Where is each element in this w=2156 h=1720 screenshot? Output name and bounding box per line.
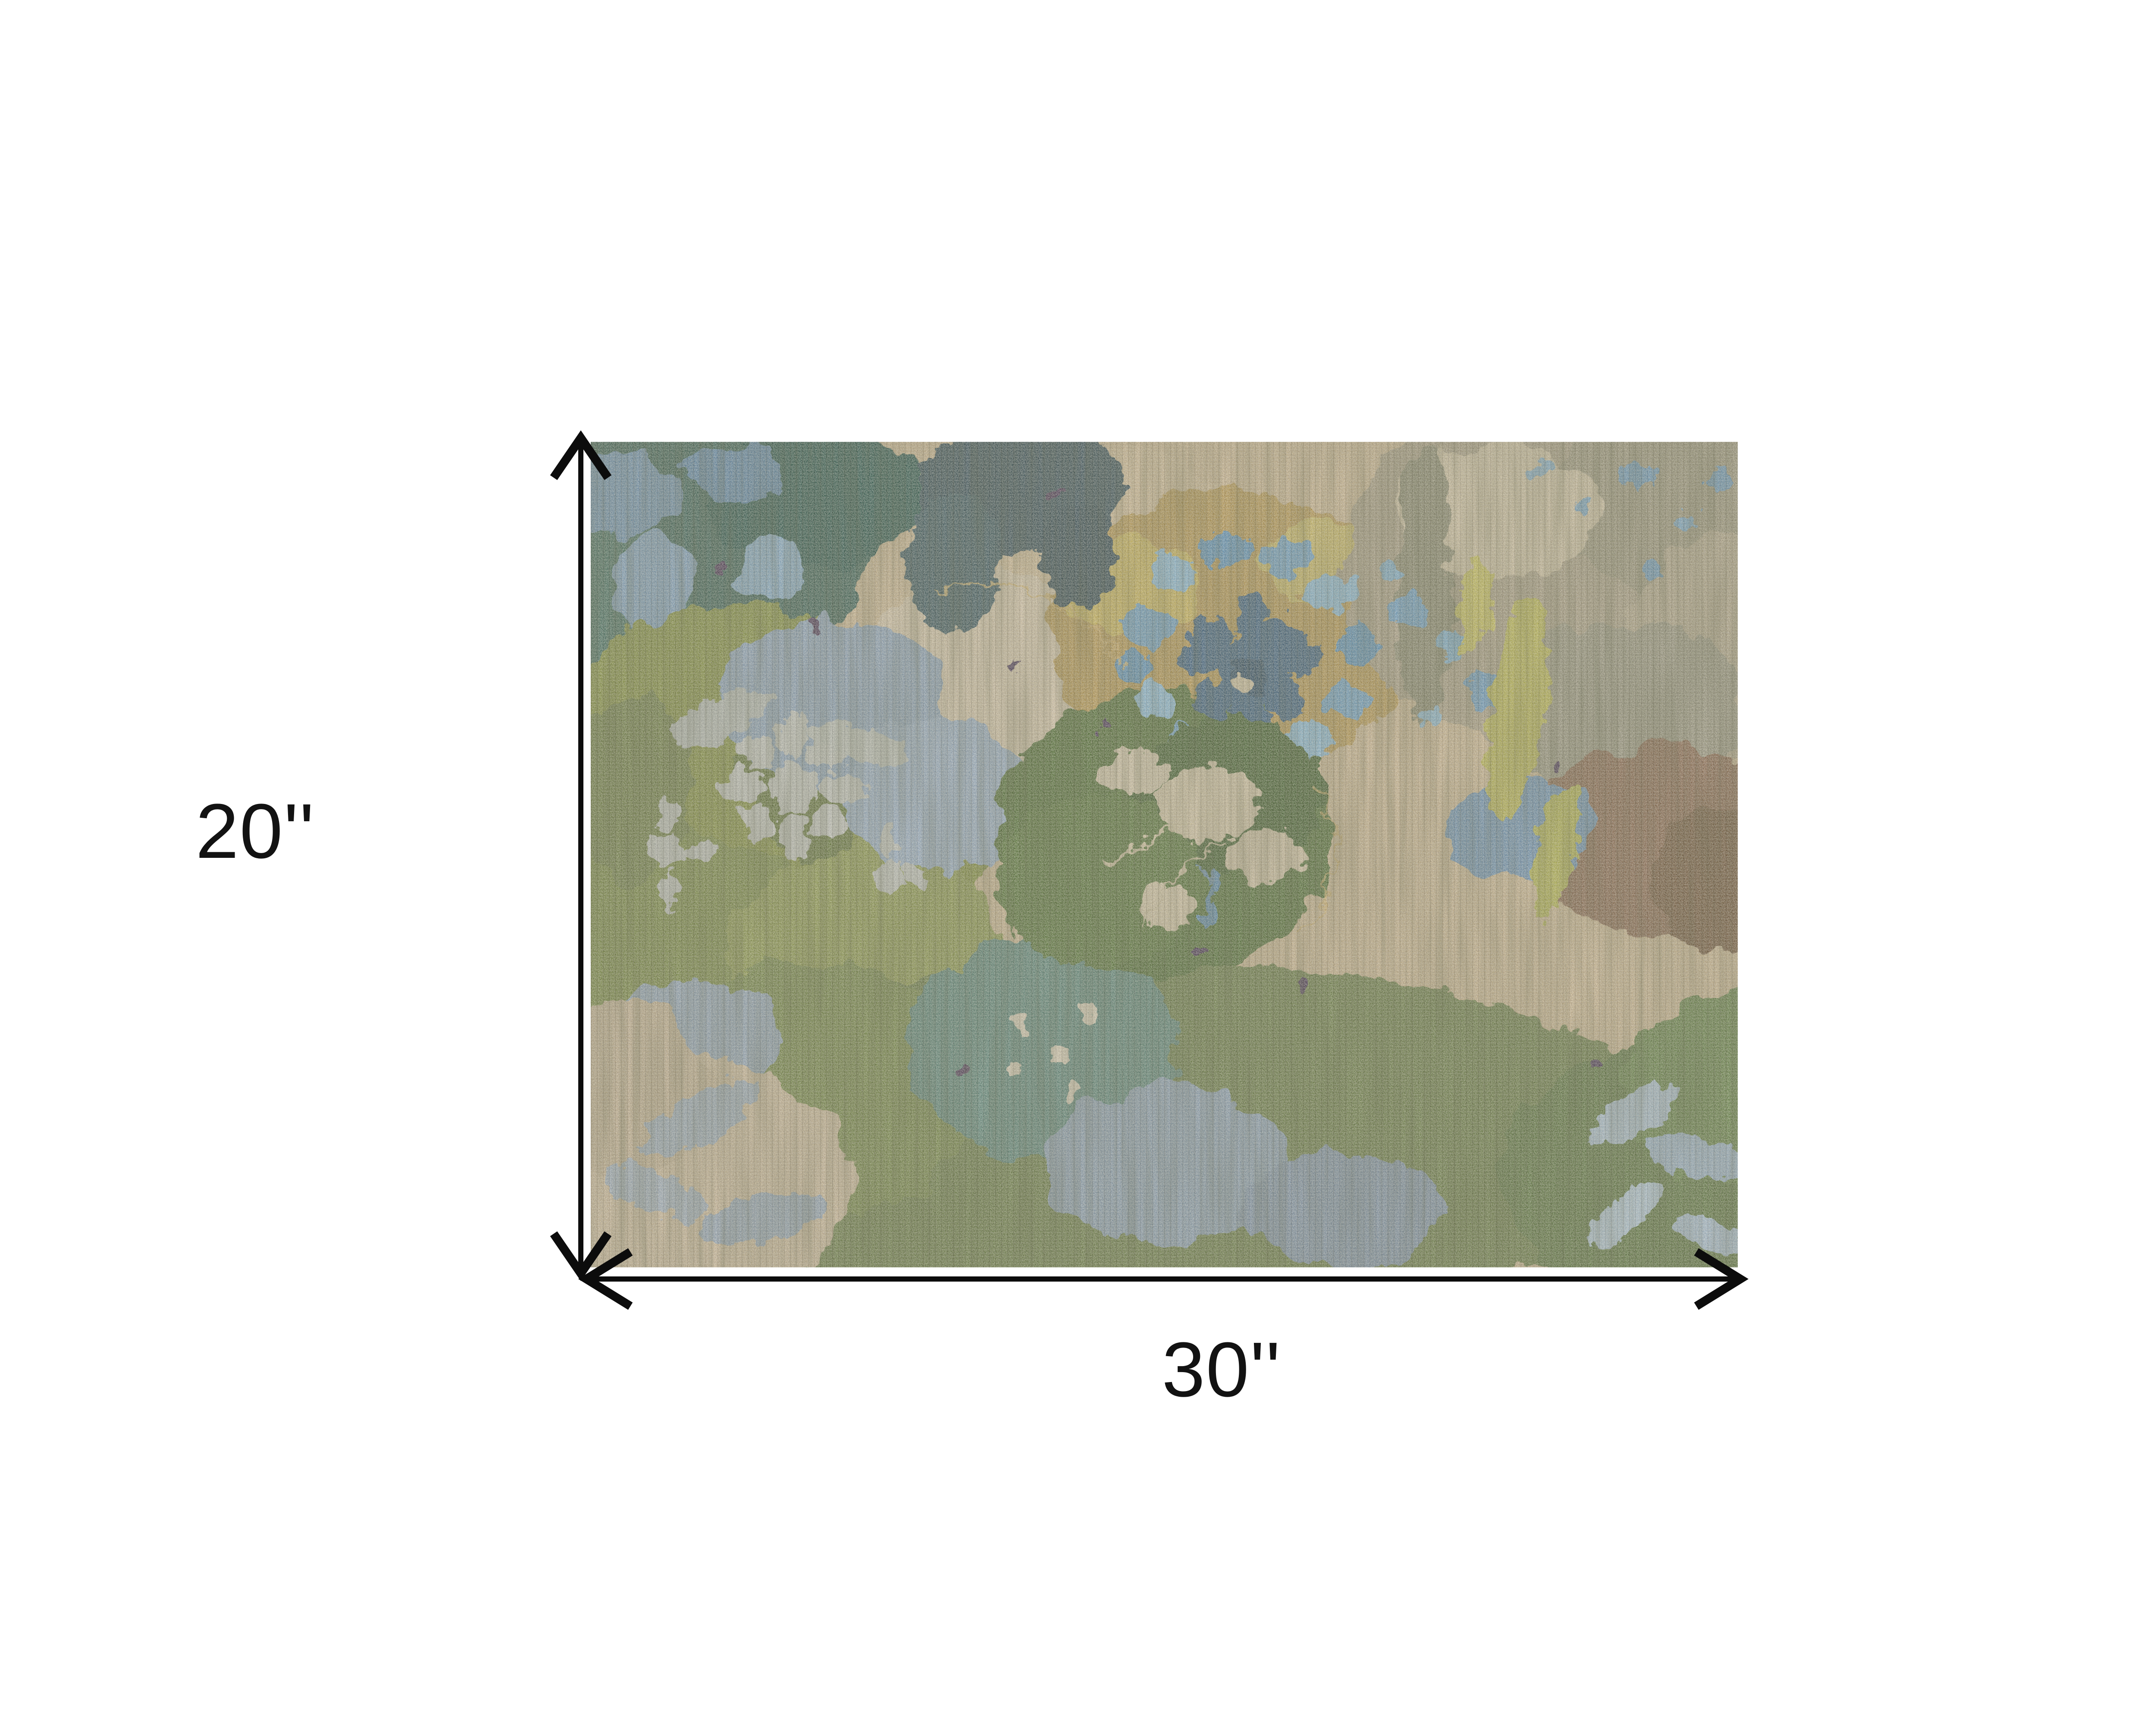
- height-dimension-label: 20'': [196, 793, 315, 870]
- rug-image: [591, 442, 1738, 1267]
- rug-artwork: [591, 442, 1738, 1267]
- product-dimension-diagram: 20'' 30'': [0, 0, 2156, 1720]
- width-dimension-arrow: [576, 1240, 1751, 1318]
- width-dimension-label: 30'': [1162, 1331, 1282, 1409]
- rug-texture-streaks: [591, 442, 1738, 1267]
- height-dimension-arrow: [544, 427, 617, 1285]
